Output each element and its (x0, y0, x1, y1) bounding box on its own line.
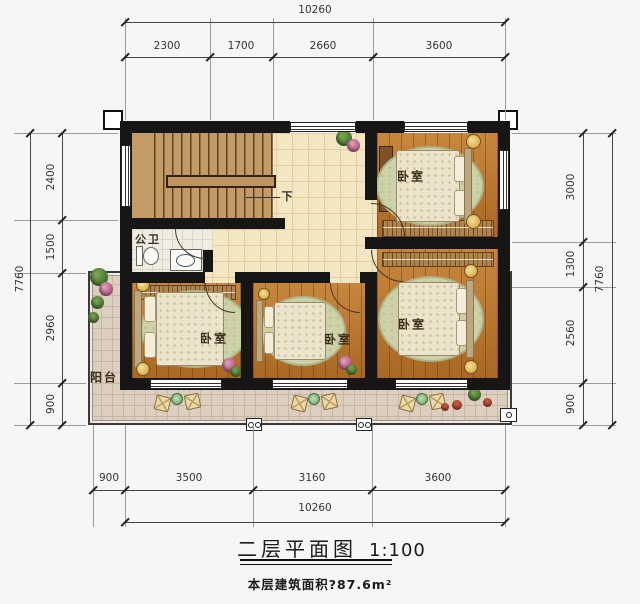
dim-top-seg: 3600 (426, 40, 453, 52)
plant (483, 398, 492, 407)
extension-line (125, 425, 126, 527)
bed (274, 302, 326, 360)
plant (452, 400, 462, 410)
dim-right-seg: 2560 (565, 320, 577, 347)
bedroom-label: 卧室 (324, 331, 352, 348)
extension-line (505, 18, 506, 120)
dimension-line-bottom-total (125, 522, 505, 523)
dim-left-seg: 900 (45, 394, 57, 414)
plant (88, 312, 99, 323)
bathroom-label: 公卫 (135, 231, 161, 247)
pillow (144, 296, 156, 322)
title-underline (240, 559, 392, 561)
extension-line (273, 18, 274, 120)
balcony-door-window (272, 379, 348, 389)
dim-left-seg: 1500 (45, 234, 57, 261)
dimension-line-bottom-segments (93, 490, 505, 491)
area-note: 本层建筑面积?87.6m² (248, 574, 393, 593)
extension-line (512, 133, 616, 134)
pillow (144, 332, 156, 358)
dim-bottom-seg: 900 (99, 472, 119, 484)
tea-table (416, 393, 428, 405)
title-underline (240, 564, 392, 565)
dim-right-total: 7760 (594, 266, 606, 293)
plant (91, 296, 104, 309)
dim-right-seg: 1300 (565, 251, 577, 278)
extension-line (253, 425, 254, 527)
toilet-tank (136, 246, 143, 266)
dim-left-seg: 2400 (45, 164, 57, 191)
drain-symbol (500, 408, 517, 422)
dim-top-seg: 2660 (310, 40, 337, 52)
interior-wall (120, 272, 205, 283)
nightstand-lamp (466, 134, 481, 149)
column-symbol (356, 418, 372, 431)
stair-direction-line (246, 197, 280, 198)
headboard (256, 300, 263, 362)
headboard (464, 148, 472, 224)
exterior-wall-top (356, 121, 404, 133)
extension-line (373, 18, 374, 120)
seat-cushion (321, 393, 339, 411)
extension-line (14, 425, 86, 426)
title-block: 二层平面图 1:100 (237, 533, 426, 562)
balcony-door-window (150, 379, 222, 389)
plant (347, 139, 360, 152)
page-title: 二层平面图 (237, 533, 357, 562)
dim-bottom-seg: 3500 (176, 472, 203, 484)
balcony-label: 阳台 (90, 369, 118, 386)
dim-top-seg: 2300 (154, 40, 181, 52)
extension-line (125, 18, 126, 120)
pillow (264, 306, 274, 328)
interior-wall (365, 283, 377, 378)
headboard (466, 280, 474, 358)
plant (99, 282, 113, 296)
window (499, 150, 509, 210)
bedroom-label: 卧室 (200, 330, 228, 347)
tea-table (171, 393, 183, 405)
interior-wall (253, 272, 330, 283)
nightstand-lamp (466, 214, 481, 229)
nightstand-lamp (136, 362, 150, 376)
extension-line (14, 383, 86, 384)
exterior-wall-top (120, 121, 290, 133)
scale-label: 1:100 (369, 540, 426, 561)
dim-bottom-seg: 3160 (299, 472, 326, 484)
interior-wall (120, 218, 285, 229)
dim-bottom-total: 10260 (298, 502, 331, 514)
extension-line (210, 18, 211, 120)
dim-left-total: 7760 (14, 266, 26, 293)
dim-bottom-seg: 3600 (425, 472, 452, 484)
column-symbol (246, 418, 262, 431)
dim-top-seg: 1700 (228, 40, 255, 52)
seat-cushion (184, 393, 202, 411)
nightstand-lamp (464, 360, 478, 374)
window (290, 122, 356, 132)
dim-right-seg: 900 (565, 394, 577, 414)
extension-line (372, 425, 373, 527)
nightstand-lamp (258, 288, 270, 300)
balcony-door-window (395, 379, 468, 389)
floor-plan: 阳台 下 公卫 (0, 0, 640, 604)
dimension-line-top-segments (125, 57, 505, 58)
window (404, 122, 468, 132)
extension-line (512, 383, 616, 384)
dimension-line-left-total (30, 133, 31, 425)
plant (230, 366, 241, 377)
nightstand-lamp (464, 264, 478, 278)
dim-top-total: 10260 (298, 4, 331, 16)
plant (346, 364, 357, 375)
dim-left-seg: 2960 (45, 315, 57, 342)
interior-wall (360, 272, 377, 283)
bed (396, 150, 460, 222)
window (121, 145, 131, 207)
bedroom-label: 卧室 (398, 316, 426, 333)
extension-line (512, 425, 616, 426)
pillow (264, 332, 274, 354)
stairs-down-label: 下 (282, 188, 295, 204)
interior-wall (365, 237, 510, 249)
toilet (143, 247, 159, 265)
tea-table (308, 393, 320, 405)
headboard (134, 290, 142, 368)
dim-right-seg: 3000 (565, 174, 577, 201)
dimension-line-right-total (612, 133, 613, 425)
extension-line (93, 425, 94, 527)
extension-line (512, 242, 616, 243)
extension-line (505, 425, 506, 527)
plant (441, 403, 449, 411)
interior-wall (241, 272, 253, 378)
dimension-line-top-total (125, 22, 505, 23)
bedroom-label: 卧室 (397, 168, 425, 185)
interior-wall (365, 133, 377, 200)
stair-handrail (166, 175, 276, 188)
